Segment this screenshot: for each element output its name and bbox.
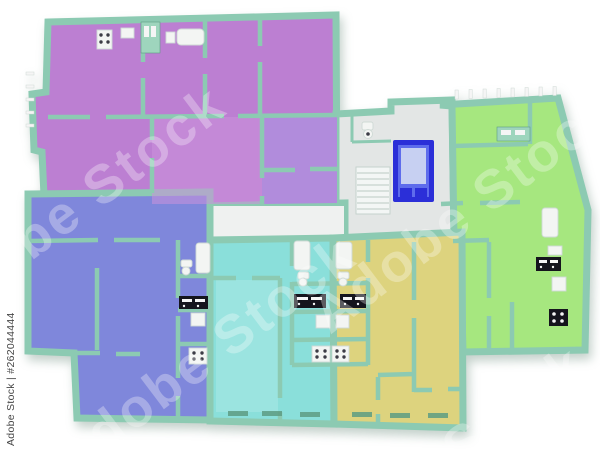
- violet-flat-bathtub: [177, 29, 204, 45]
- violet-flat-stove: [97, 30, 112, 49]
- cyan-flat-stove: [312, 346, 330, 362]
- floorplan-render: Adobe Stock Adobe Stock Adobe Stock Adob…: [0, 0, 600, 450]
- green-flat-bathtub: [542, 208, 558, 237]
- violet-room-shade: [262, 115, 337, 204]
- violet-flat-sink: [121, 28, 134, 38]
- elevator-shaft: [393, 140, 434, 202]
- staircase: [356, 167, 390, 214]
- periwinkle-flat-bathtub: [196, 243, 210, 273]
- core-toilet: [362, 122, 373, 139]
- periwinkle-flat-kitchen-counter: [179, 296, 208, 309]
- green-flat-stove: [549, 309, 568, 326]
- watermark-side-credit: Adobe Stock | #262044444: [5, 312, 17, 446]
- apartment-building-plan: [26, 15, 588, 428]
- violet-flat-washer: [166, 32, 175, 43]
- violet-flat-cabinet: [141, 22, 160, 53]
- yellow-flat-stove: [332, 346, 349, 362]
- green-flat-refrigerator: [552, 277, 566, 291]
- stock-photo-canvas: Adobe Stock Adobe Stock Adobe Stock Adob…: [0, 0, 600, 450]
- green-flat-kitchen-counter: [536, 257, 561, 271]
- green-flat-sink: [548, 246, 562, 255]
